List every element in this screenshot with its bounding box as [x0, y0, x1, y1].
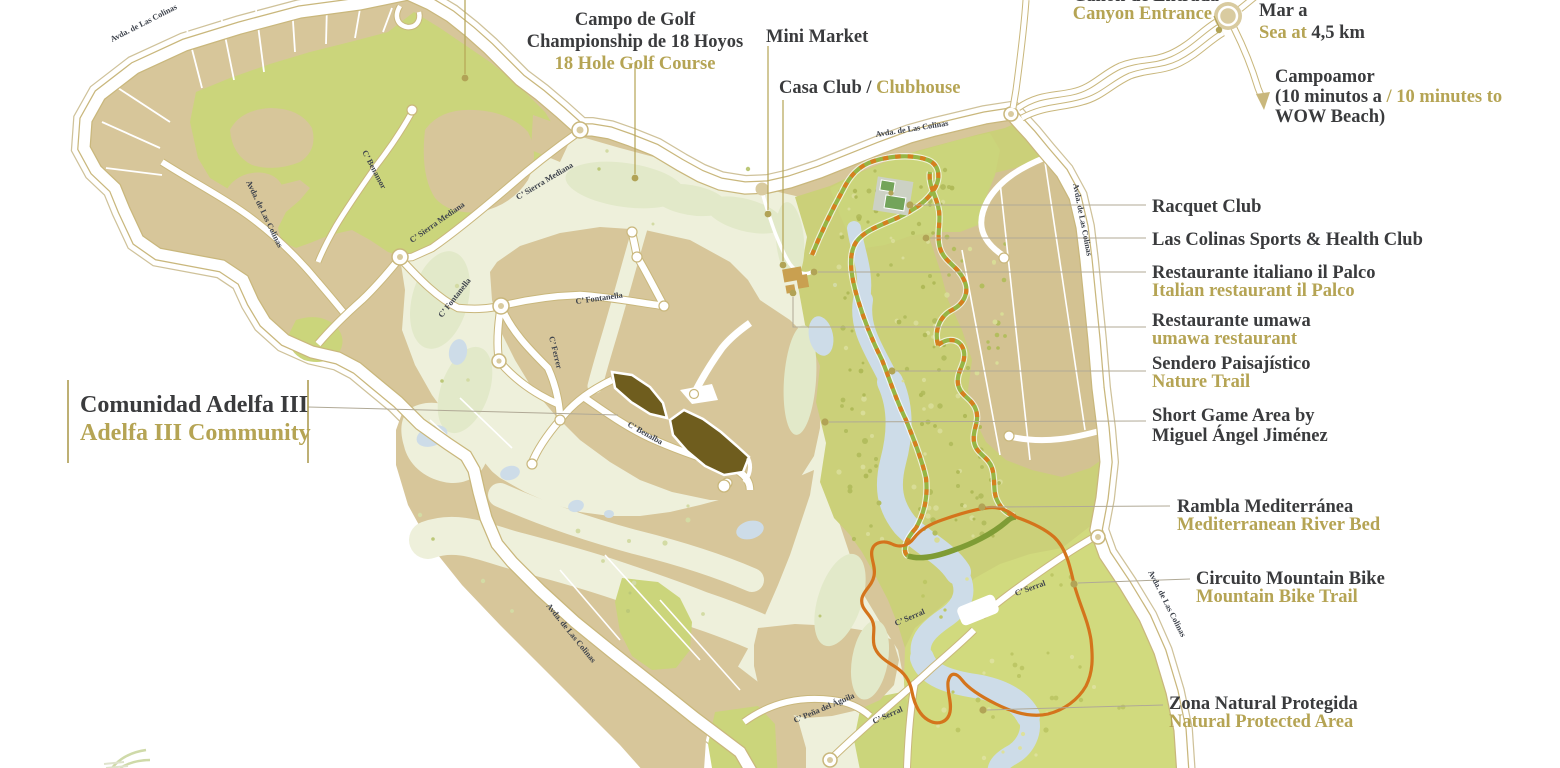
svg-text:Mar a: Mar a — [1259, 1, 1307, 21]
svg-text:Zona Natural Protegida: Zona Natural Protegida — [1169, 694, 1358, 714]
svg-text:(10 minutos a / 10 minutes to: (10 minutos a / 10 minutes to — [1275, 87, 1502, 107]
svg-text:Sea at 4,5 km: Sea at 4,5 km — [1259, 23, 1365, 43]
svg-text:Comunidad Adelfa III: Comunidad Adelfa III — [80, 392, 308, 418]
svg-text:18 Hole Golf Course: 18 Hole Golf Course — [555, 54, 716, 74]
svg-text:WOW Beach): WOW Beach) — [1275, 107, 1385, 127]
svg-text:Restaurante italiano il Palco: Restaurante italiano il Palco — [1152, 263, 1376, 283]
svg-text:Circuito Mountain Bike: Circuito Mountain Bike — [1196, 569, 1385, 589]
svg-text:Mini Market: Mini Market — [766, 27, 869, 47]
svg-text:Natural Protected Area: Natural Protected Area — [1169, 712, 1353, 732]
svg-text:Short Game Area by: Short Game Area by — [1152, 406, 1315, 426]
svg-text:Rambla Mediterránea: Rambla Mediterránea — [1177, 497, 1353, 517]
svg-text:Championship de 18 Hoyos: Championship de 18 Hoyos — [527, 32, 743, 52]
svg-text:Las Colinas Sports & Health Cl: Las Colinas Sports & Health Club — [1152, 230, 1423, 250]
svg-text:Racquet Club: Racquet Club — [1152, 197, 1261, 217]
svg-text:Campoamor: Campoamor — [1275, 67, 1375, 87]
svg-text:Avda. de Las Colinas: Avda. de Las Colinas — [109, 2, 179, 43]
svg-text:Restaurante umawa: Restaurante umawa — [1152, 311, 1311, 331]
svg-text:Adelfa III Community: Adelfa III Community — [80, 420, 311, 446]
svg-text:Campo de Golf: Campo de Golf — [575, 10, 696, 30]
svg-text:Nature Trail: Nature Trail — [1152, 372, 1250, 392]
svg-text:Canyon Entrance: Canyon Entrance — [1073, 4, 1212, 24]
svg-text:Mediterranean River Bed: Mediterranean River Bed — [1177, 515, 1381, 535]
svg-text:Casa Club / Clubhouse: Casa Club / Clubhouse — [779, 78, 960, 98]
svg-text:umawa restaurant: umawa restaurant — [1152, 329, 1298, 349]
svg-text:Miguel Ángel Jiménez: Miguel Ángel Jiménez — [1152, 424, 1328, 446]
svg-text:Sendero Paisajístico: Sendero Paisajístico — [1152, 354, 1310, 374]
svg-text:Mountain Bike Trail: Mountain Bike Trail — [1196, 587, 1358, 607]
svg-text:Italian restaurant il Palco: Italian restaurant il Palco — [1152, 281, 1355, 301]
